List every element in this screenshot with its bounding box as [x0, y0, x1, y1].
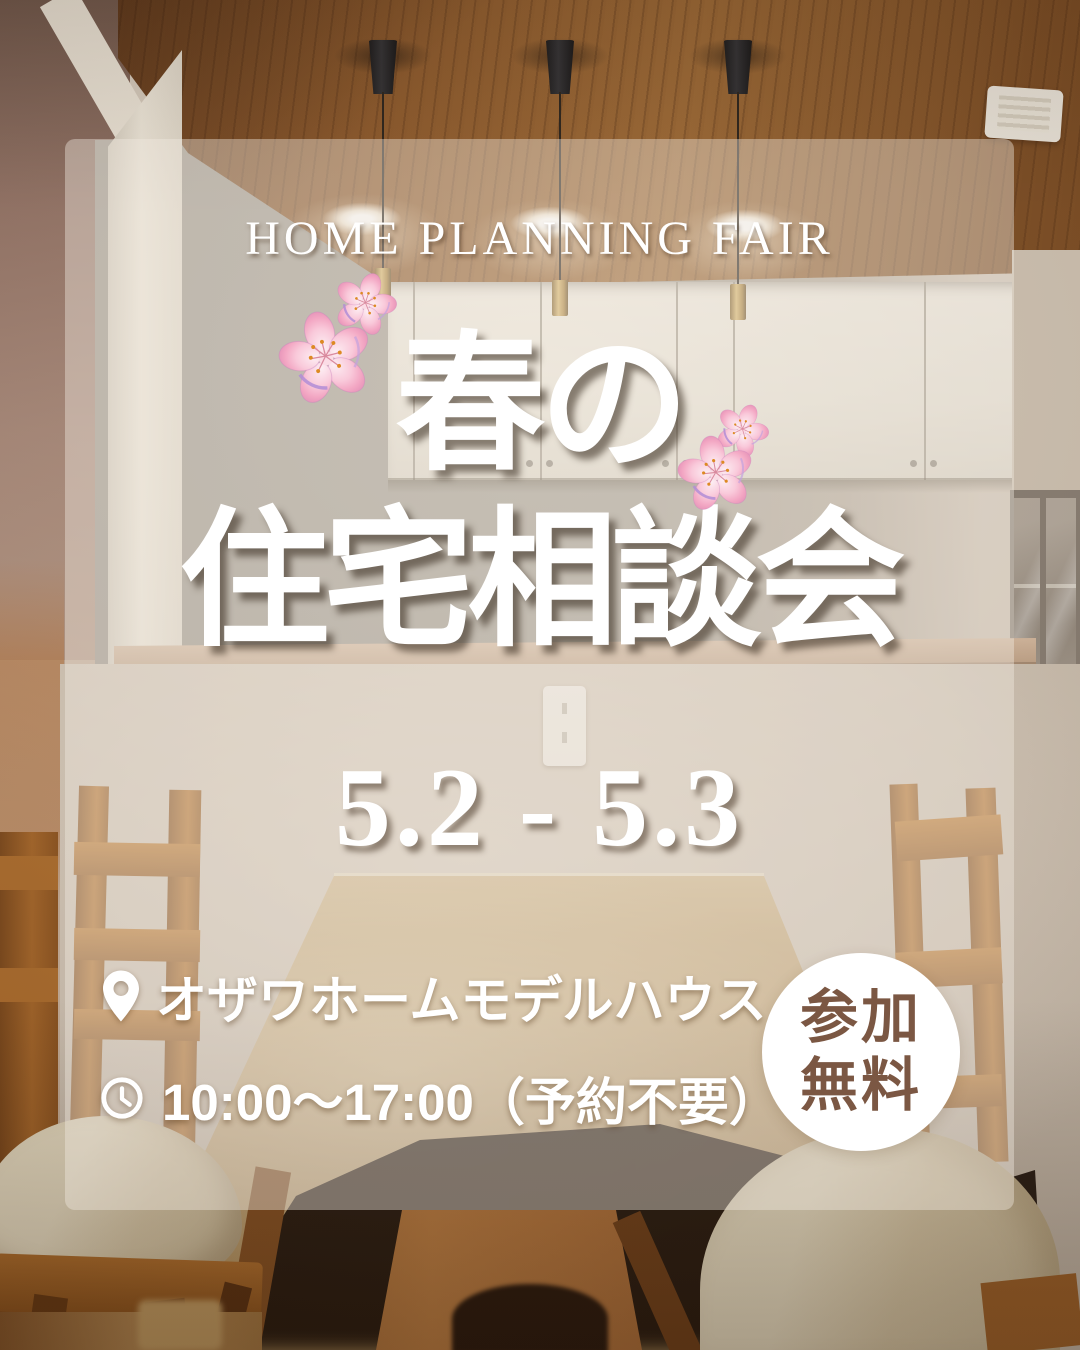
vent-grill	[997, 95, 1051, 133]
chair-slat	[0, 856, 58, 890]
event-dates: 5.2 - 5.3	[65, 752, 1014, 864]
hours-row: 10:00〜17:00（予約不要）	[99, 1061, 780, 1135]
badge-line1: 参加	[800, 984, 922, 1052]
hours-text: 10:00〜17:00（予約不要）	[162, 1061, 780, 1135]
eyebrow-text: HOME PLANNING FAIR	[65, 211, 1014, 266]
page-title-line2: 住宅相談会	[65, 505, 1014, 655]
floor-light-patch	[138, 1300, 222, 1350]
right-chair-seat-rail	[980, 1273, 1080, 1350]
pendant-mount	[367, 40, 399, 94]
table-leg-arch	[452, 1284, 608, 1350]
page-title-line1: 春の	[65, 329, 1014, 479]
overlay-panel: HOME PLANNING FAIR 春の 住宅相談会 5.2 - 5.3 オザ…	[65, 139, 1014, 1210]
map-pin-icon	[103, 970, 139, 1022]
location-text: オザワホームモデルハウス	[156, 959, 766, 1033]
clock-icon	[99, 1075, 145, 1121]
right-wall	[1012, 250, 1080, 494]
chair-slat	[0, 968, 58, 1002]
ceiling-vent	[984, 85, 1063, 142]
badge-line2: 無料	[800, 1052, 922, 1120]
wood-floor	[0, 1312, 262, 1350]
pendant-mount	[544, 40, 576, 94]
free-entry-badge: 参加 無料	[762, 953, 960, 1151]
location-row: オザワホームモデルハウス	[103, 959, 766, 1033]
pendant-mount	[722, 40, 754, 94]
flyer-canvas: HOME PLANNING FAIR 春の 住宅相談会 5.2 - 5.3 オザ…	[0, 0, 1080, 1350]
